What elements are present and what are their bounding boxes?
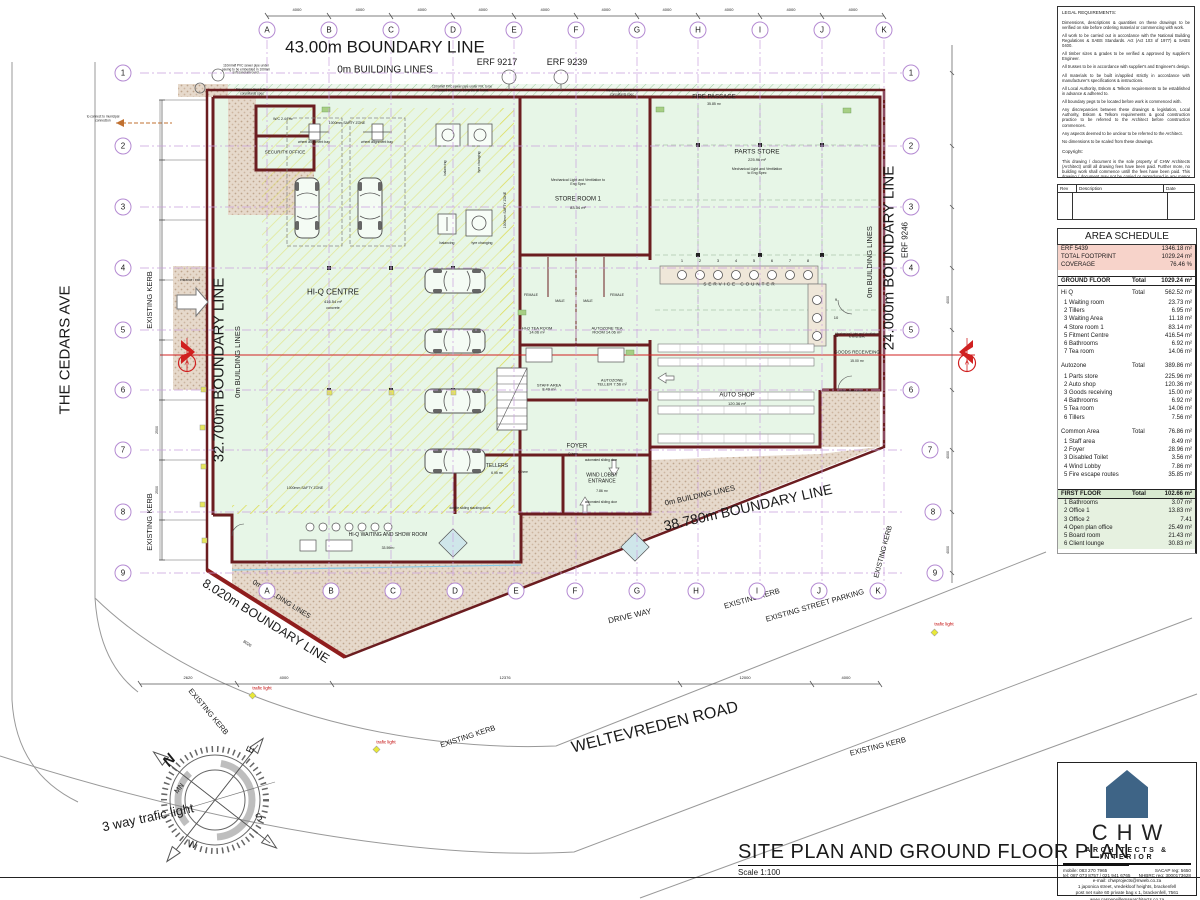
plan-label-fe1: fire escape door to the consultants spec <box>234 88 270 95</box>
dimension-right: 4000 <box>947 451 951 459</box>
grid-letter-top-I: I <box>752 22 769 39</box>
first-floor-header-row: FIRST FLOORTotal102.66 m² <box>1058 489 1195 499</box>
grid-number-right-3: 3 <box>903 199 920 216</box>
plan-label-tellers: TELLERS <box>486 464 508 470</box>
schedule-item-row: 6 Bathrooms6.92 m² <box>1058 340 1195 348</box>
schedule-item-row: 1 Staff area8.49 m² <box>1058 438 1195 446</box>
plan-label-safety3: 1000mm SAFTY ZONE <box>504 192 508 229</box>
plan-label-qh2: Q-here <box>518 471 528 475</box>
area-schedule-panel: AREA SCHEDULE ERF 54391346.18 m²TOTAL FO… <box>1057 228 1197 554</box>
grid-number-left-8: 8 <box>115 504 132 521</box>
schedule-item-row: 4 Wind Lobby7.86 m² <box>1058 463 1195 471</box>
counter-number: 2 <box>699 259 701 263</box>
grid-number-left-9: 9 <box>115 565 132 582</box>
plan-label-sewer2: 110mmØ PVC sewer pipe under FFL to be en… <box>429 85 495 92</box>
plan-label-safety2: 1000mm SAFTY ZONE <box>287 487 324 491</box>
grid-number-left-6: 6 <box>115 382 132 399</box>
plan-label-kerb_l1: EXISTING KERB <box>146 271 154 329</box>
plan-label-mech2: Mechanical Light and Ventilation to Eng … <box>731 168 783 176</box>
dimension-bottom: 4000 <box>280 676 289 680</box>
drawing-title: SITE PLAN AND GROUND FLOOR PLAN <box>738 841 1129 866</box>
title-block-line-3: post net suite 60 private bag x 1, brack… <box>1058 890 1196 896</box>
plan-label-auto_tea: AUTOZONE TEA ROOM 14.06 m² <box>585 327 629 336</box>
plan-label-tellers_a: 6.95 m² <box>491 472 503 476</box>
plan-label-parts_a: 225.96 m² <box>748 158 766 162</box>
grid-number-right-2: 2 <box>903 138 920 155</box>
plan-label-staff: STAFF AREA 8.49 m² <box>535 384 563 393</box>
grid-number-right-9: 9 <box>927 565 944 582</box>
dimension-top: 4000 <box>479 8 488 12</box>
grid-letter-bottom-F: F <box>567 583 584 600</box>
grid-number-left-1: 1 <box>115 65 132 82</box>
grid-letter-top-F: F <box>568 22 585 39</box>
schedule-group-row: Hi QTotal562.52 m² <box>1058 289 1195 297</box>
schedule-item-row: 4 Bathrooms6.92 m² <box>1058 397 1195 405</box>
plan-label-security: SECURITY OFFICE <box>264 149 306 154</box>
dimension-top: 4000 <box>663 8 672 12</box>
plan-label-tyre1: tyre changing <box>478 151 482 172</box>
grid-letter-top-E: E <box>506 22 523 39</box>
plan-label-goods: GOODS RECEIVEING <box>833 349 881 354</box>
site-plan-linework <box>0 0 1200 900</box>
plan-label-autoshop: AUTO SHOP <box>719 393 754 400</box>
legal-title: LEGAL REQUIREMENTS: <box>1062 10 1190 16</box>
grid-letter-top-G: G <box>629 22 646 39</box>
legal-paragraph-8: Any discrepancies between these drawings… <box>1062 107 1190 128</box>
grid-letter-bottom-C: C <box>385 583 402 600</box>
grid-number-left-2: 2 <box>115 138 132 155</box>
schedule-item-row: 1 Parts store225.96 m² <box>1058 373 1195 381</box>
schedule-item-row: 5 Fitment Centre416.54 m² <box>1058 332 1195 340</box>
grid-letter-bottom-E: E <box>508 583 525 600</box>
schedule-item-row: 3 Disabled Toilet3.56 m² <box>1058 454 1195 462</box>
plan-label-wc: W/C 2.44 m² <box>273 118 293 122</box>
dimension-bottom: 2620 <box>184 676 193 680</box>
dimension-bottom: 4000 <box>842 676 851 680</box>
counter-number: 8 <box>807 259 809 263</box>
plan-label-female2: FEMALE <box>610 294 624 298</box>
plan-label-store1_a: 83.54 m² <box>570 206 586 210</box>
plan-label-b_left: 32.700m BOUNDARY LINE <box>212 278 229 463</box>
plan-label-erf9217: ERF 9217 <box>477 57 518 67</box>
plan-label-bal2: balancing <box>440 242 455 246</box>
plan-label-bl_left: 0m BUILDING LINES <box>234 326 242 398</box>
description-col-header: Description <box>1077 185 1164 192</box>
legal-paragraph-2: All work to be carried out in accordance… <box>1062 33 1190 48</box>
date-col-header: Date <box>1164 185 1194 192</box>
grid-number-right-5: 5 <box>903 322 920 339</box>
schedule-item-row: 2 Foyer28.96 m² <box>1058 446 1195 454</box>
schedule-item-row: 6 Tillers7.56 m² <box>1058 414 1195 422</box>
grid-letter-top-H: H <box>690 22 707 39</box>
grid-letter-top-K: K <box>876 22 893 39</box>
plan-label-kerb_l2: EXISTING KERB <box>146 493 154 551</box>
schedule-item-row: 6 Client lounge30.83 m² <box>1058 540 1195 548</box>
schedule-item-row: 3 Goods receiving15.00 m² <box>1058 389 1195 397</box>
schedule-item-row: 2 Auto shop120.36 m² <box>1058 381 1195 389</box>
dimension-top: 4000 <box>602 8 611 12</box>
grid-letter-bottom-G: G <box>629 583 646 600</box>
dimension-right: 4000 <box>947 296 951 304</box>
schedule-item-row: 1 Bathrooms3.07 m² <box>1058 499 1195 507</box>
schedule-item-row: 7 Tea room14.06 m² <box>1058 348 1195 356</box>
schedule-item-row: 2 Tillers6.95 m² <box>1058 307 1195 315</box>
drawing-title-area: SITE PLAN AND GROUND FLOOR PLAN Scale 1:… <box>738 841 1129 877</box>
plan-label-female1: FEMALE <box>524 294 538 298</box>
grid-number-left-4: 4 <box>115 260 132 277</box>
plan-label-hiq_a: 416.54 m² <box>324 300 342 304</box>
schedule-item-row: 3 Waiting Area11.18 m² <box>1058 315 1195 323</box>
plan-label-fire_passage: FIRE PASSAGE <box>692 95 736 102</box>
plan-label-municipal: to connect to municipal connection <box>86 115 120 122</box>
legal-paragraph-3: All timber sizes & grades to be verified… <box>1062 51 1190 61</box>
plan-label-roller: roller shutter door <box>830 389 872 392</box>
title-block-line-4: www.casperwillemsearchitects.co.za <box>1058 897 1196 900</box>
plan-label-traffic3: trafic light <box>934 621 953 626</box>
dimension-left: 2500 <box>156 426 160 434</box>
plan-label-show_a: 33.59m² <box>382 547 395 551</box>
plan-label-goods_a: 15.00 m² <box>850 360 864 364</box>
plan-label-male1: MALE <box>555 300 565 304</box>
grid-number-right-6: 6 <box>903 382 920 399</box>
grid-number-right-1: 1 <box>903 65 920 82</box>
plan-label-bay1: wheel alignment bay <box>298 141 330 145</box>
grid-letter-bottom-H: H <box>688 583 705 600</box>
dimension-top: 4000 <box>293 8 302 12</box>
schedule-item-row: 4 Store room 183.14 m² <box>1058 324 1195 332</box>
grid-letter-bottom-A: A <box>259 583 276 600</box>
plan-label-bal1: balancing <box>444 161 448 176</box>
copyright-title: Copyright: <box>1062 149 1190 155</box>
grid-letter-top-B: B <box>321 22 338 39</box>
revision-table: Rev Description Date <box>1057 184 1195 220</box>
plan-label-hiq_c: concrete <box>326 307 339 311</box>
plan-label-qh1: Q-here <box>568 453 578 457</box>
grid-number-left-5: 5 <box>115 322 132 339</box>
schedule-item-row: 3 Office 27.41 <box>1058 516 1195 524</box>
dimension-bottom: 12376 <box>499 676 510 680</box>
plan-label-mech3: Mechanical Light and Ventilation to Eng … <box>835 333 879 340</box>
plan-label-parts: PARTS STORE <box>734 148 779 155</box>
legal-paragraph-5: All materials to be built in/applied str… <box>1062 73 1190 83</box>
schedule-item-row: 1 Waiting room23.73 m² <box>1058 299 1195 307</box>
plan-label-ent: entrance / exit <box>180 279 200 283</box>
plan-label-hiq_tea: HI-Q TEA ROOM 14.06 m² <box>519 327 555 336</box>
plan-label-cedars: THE CEDARS AVE <box>58 286 75 415</box>
plan-label-hiq: HI-Q CENTRE <box>307 289 359 298</box>
plan-label-male2: MALE <box>583 300 593 304</box>
plan-label-wind: WIND LOBBY ENTRANCE <box>573 473 631 484</box>
legal-requirements-panel: LEGAL REQUIREMENTS: Dimensions, descript… <box>1057 6 1195 178</box>
chw-house-logo-icon <box>1106 770 1148 818</box>
counter-number: 5 <box>753 259 755 263</box>
schedule-summary-row: ERF 54391346.18 m² <box>1058 245 1195 253</box>
sheet-border <box>0 877 1200 878</box>
counter-number: 4 <box>735 259 737 263</box>
legal-paragraph-1: Dimensions, descriptions & quantities on… <box>1062 20 1190 30</box>
legal-paragraph-10: No dimensions to be scaled from these dr… <box>1062 139 1190 144</box>
schedule-group-row: AutozoneTotal389.86 m² <box>1058 362 1195 370</box>
drawing-sheet: 43.00m BOUNDARY LINE0m BUILDING LINESERF… <box>0 0 1200 900</box>
safety-zone-hatch <box>262 108 500 508</box>
plan-label-stack: double sliding stacking doors <box>450 507 491 511</box>
plan-label-show: HI-Q WAITING AND SHOW ROOM <box>344 533 432 539</box>
plan-label-store1: STORE ROOM 1 <box>555 197 601 204</box>
plan-label-boundary_top: 43.00m BOUNDARY LINE <box>285 37 485 56</box>
plan-label-slide1: automated sliding door <box>585 459 617 463</box>
plan-label-safety1: 1000mm SAFTY ZONE <box>329 122 366 126</box>
area-schedule-title: AREA SCHEDULE <box>1057 228 1197 245</box>
counter-number: 9 <box>835 298 837 302</box>
dimension-bottom: 12000 <box>739 676 750 680</box>
plan-label-mech1: Mechanical Light and Ventilation to Eng … <box>550 179 606 187</box>
counter-number: 7 <box>789 259 791 263</box>
plan-label-bay2: wheel alignment bay <box>361 141 393 145</box>
counter-number: 3 <box>717 259 719 263</box>
grid-letter-top-C: C <box>383 22 400 39</box>
plan-label-sewer1: 110mmØ PVC sewer pipe under paving to be… <box>219 65 273 76</box>
grid-letter-bottom-K: K <box>870 583 887 600</box>
grid-number-right-7: 7 <box>922 442 939 459</box>
plan-label-autoshop_a: 120.36 m² <box>728 402 746 406</box>
plan-label-svc: SERVICE COUNTER <box>703 281 776 286</box>
drawing-scale: Scale 1:100 <box>738 868 1129 877</box>
rev-col-header: Rev <box>1058 185 1077 192</box>
legal-paragraph-7: All boundary pegs to be located before w… <box>1062 99 1190 104</box>
schedule-item-row: 5 Tea room14.06 m² <box>1058 405 1195 413</box>
grid-number-right-4: 4 <box>903 260 920 277</box>
schedule-item-row: 5 Fire escape routes35.85 m² <box>1058 471 1195 479</box>
schedule-group-row: Common AreaTotal76.86 m² <box>1058 428 1195 436</box>
counter-number: 10 <box>834 316 838 320</box>
grid-letter-bottom-J: J <box>811 583 828 600</box>
dimension-top: 4000 <box>356 8 365 12</box>
grid-letter-top-D: D <box>445 22 462 39</box>
ground-floor-header-row: GROUND FLOORTotal1029.24 m² <box>1058 276 1195 286</box>
plan-label-b_right: 24.000m BOUNDARY LINE <box>882 166 899 351</box>
plan-label-erf9239: ERF 9239 <box>547 57 588 67</box>
counter-number: 1 <box>681 259 683 263</box>
grid-letter-top-A: A <box>259 22 276 39</box>
dimension-top: 4000 <box>418 8 427 12</box>
grid-number-left-3: 3 <box>115 199 132 216</box>
plan-label-traffic2: trafic light <box>376 739 395 744</box>
grid-number-right-8: 8 <box>925 504 942 521</box>
plan-label-slide2: automated sliding door <box>585 501 617 505</box>
dimension-top: 4000 <box>849 8 858 12</box>
plan-label-traffic1: trafic light <box>252 685 271 690</box>
grid-letter-bottom-I: I <box>749 583 766 600</box>
section-marker-letter: A <box>185 359 189 366</box>
grid-letter-top-J: J <box>814 22 831 39</box>
counter-number: 6 <box>771 259 773 263</box>
legal-paragraph-6: All Local Authority, Eskom & Telkom requ… <box>1062 86 1190 96</box>
plan-label-fe2: fire escape door to the consultants spec <box>606 89 638 96</box>
dimension-top: 4000 <box>787 8 796 12</box>
schedule-item-row: 2 Office 113.83 m² <box>1058 507 1195 515</box>
plan-label-erf9246: ERF 9246 <box>902 222 911 258</box>
plan-label-wind_a: 7.86 m² <box>596 490 608 494</box>
plan-label-az_tel: AUTOZONE TELLER 7.56 m² <box>594 379 630 388</box>
stairs <box>497 368 527 430</box>
schedule-item-row: 5 Board room21.43 m² <box>1058 532 1195 540</box>
counter-number: 11 <box>834 334 838 338</box>
grid-letter-bottom-D: D <box>447 583 464 600</box>
plan-label-fp_area: 35.85 m² <box>707 103 721 107</box>
dimension-left: 2500 <box>156 486 160 494</box>
schedule-summary-row: TOTAL FOOTPRINT1029.24 m² <box>1058 253 1195 261</box>
dimension-top: 4000 <box>541 8 550 12</box>
section-marker-letter: A <box>965 359 969 366</box>
plan-label-bl_right: 0m BUILDING LINES <box>866 226 874 298</box>
legal-paragraph-4: All trusses to be in accordance with sup… <box>1062 64 1190 69</box>
grid-number-left-7: 7 <box>115 442 132 459</box>
schedule-item-row: 4 Open plan office25.49 m² <box>1058 524 1195 532</box>
grid-letter-bottom-B: B <box>323 583 340 600</box>
plan-label-foyer: FOYER <box>567 444 588 451</box>
plan-label-building_top: 0m BUILDING LINES <box>337 64 433 75</box>
plan-label-tyre2: tyre changing <box>471 242 492 246</box>
schedule-summary-row: COVERAGE76.46 % <box>1058 261 1195 269</box>
dimension-right: 4000 <box>947 546 951 554</box>
copyright-text: This drawing / document is the sole prop… <box>1062 159 1190 178</box>
dimension-top: 4000 <box>725 8 734 12</box>
legal-paragraph-9: Any aspects deemed to be unclear to be r… <box>1062 131 1190 136</box>
